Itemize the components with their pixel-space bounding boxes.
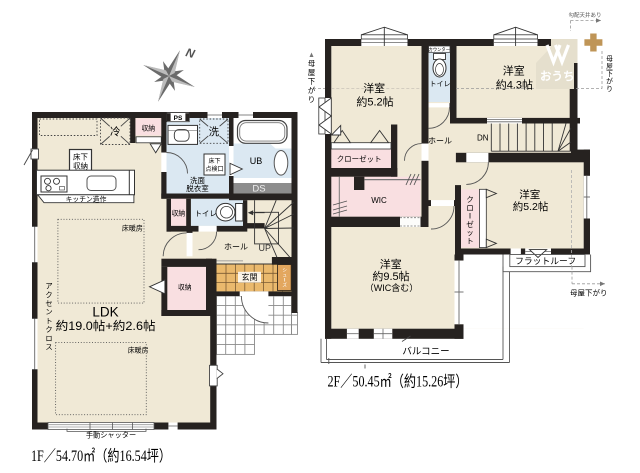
svg-text:トイレ: トイレ bbox=[430, 81, 451, 88]
svg-text:DN: DN bbox=[477, 134, 489, 143]
svg-text:アクセントクロス: アクセントクロス bbox=[45, 282, 54, 352]
svg-text:（WIC含む）: （WIC含む） bbox=[365, 282, 419, 293]
svg-text:約5.2帖: 約5.2帖 bbox=[356, 95, 393, 109]
svg-text:脱衣室: 脱衣室 bbox=[186, 183, 209, 193]
svg-text:UP: UP bbox=[259, 243, 272, 253]
svg-text:母屋下がり: 母屋下がり bbox=[570, 288, 608, 298]
svg-text:収納: 収納 bbox=[172, 208, 186, 217]
svg-text:収納: 収納 bbox=[142, 123, 156, 132]
svg-text:約5.2帖: 約5.2帖 bbox=[513, 200, 549, 213]
svg-text:LDK: LDK bbox=[92, 304, 118, 319]
svg-text:玄関: 玄関 bbox=[242, 272, 258, 282]
svg-text:ホール: ホール bbox=[224, 242, 248, 251]
svg-text:収納: 収納 bbox=[178, 283, 192, 292]
svg-text:キッチン造作: キッチン造作 bbox=[66, 195, 107, 204]
svg-text:床下: 床下 bbox=[208, 157, 220, 165]
svg-text:洋室: 洋室 bbox=[503, 64, 525, 78]
svg-text:ホール: ホール bbox=[428, 136, 452, 145]
svg-text:約4.3帖: 約4.3帖 bbox=[496, 78, 533, 92]
svg-text:屋: 屋 bbox=[308, 68, 316, 77]
svg-text:が: が bbox=[606, 77, 613, 86]
svg-text:フラットルーフ: フラットルーフ bbox=[515, 256, 576, 266]
svg-text:屋: 屋 bbox=[606, 63, 613, 71]
svg-text:り: り bbox=[606, 85, 613, 93]
svg-text:バルコニー: バルコニー bbox=[402, 347, 449, 358]
svg-text:クローゼット: クローゼット bbox=[337, 153, 382, 163]
svg-text:ロ: ロ bbox=[466, 204, 474, 213]
svg-text:母: 母 bbox=[606, 55, 613, 63]
svg-text:約9.5帖: 約9.5帖 bbox=[372, 269, 409, 283]
svg-text:床暖房: 床暖房 bbox=[128, 345, 149, 354]
svg-text:母: 母 bbox=[308, 59, 316, 68]
svg-text:UB: UB bbox=[250, 156, 263, 166]
svg-text:床暖房: 床暖房 bbox=[122, 223, 143, 232]
svg-text:冷: 冷 bbox=[110, 125, 121, 138]
svg-text:下: 下 bbox=[308, 77, 316, 86]
svg-text:WIC: WIC bbox=[371, 196, 387, 205]
svg-text:ュ: ュ bbox=[282, 273, 287, 278]
svg-text:トイレ: トイレ bbox=[194, 209, 217, 218]
svg-text:おうち: おうち bbox=[540, 70, 575, 83]
svg-text:が: が bbox=[308, 85, 316, 95]
svg-text:洋室: 洋室 bbox=[363, 81, 385, 95]
svg-text:PS: PS bbox=[174, 115, 183, 122]
svg-text:カウンター: カウンター bbox=[429, 46, 450, 53]
svg-text:点検口: 点検口 bbox=[205, 165, 223, 173]
svg-text:下: 下 bbox=[606, 70, 613, 78]
svg-text:ト: ト bbox=[466, 237, 474, 246]
svg-text:2F／50.45㎡（約15.26坪）: 2F／50.45㎡（約15.26坪） bbox=[328, 373, 468, 391]
svg-text:ズ: ズ bbox=[282, 282, 287, 289]
svg-text:り: り bbox=[308, 95, 316, 104]
svg-text:収納: 収納 bbox=[73, 160, 88, 170]
svg-text:洋室: 洋室 bbox=[380, 257, 402, 271]
svg-text:勾配天井あり: 勾配天井あり bbox=[568, 11, 601, 19]
svg-text:洋室: 洋室 bbox=[519, 188, 540, 201]
svg-text:手動シャッター: 手動シャッター bbox=[86, 431, 136, 440]
svg-text:DS: DS bbox=[252, 184, 265, 195]
svg-text:1F／54.70㎡（約16.54坪）: 1F／54.70㎡（約16.54坪） bbox=[31, 447, 171, 465]
svg-text:約19.0帖+約2.6帖: 約19.0帖+約2.6帖 bbox=[56, 318, 156, 333]
svg-text:洗: 洗 bbox=[209, 126, 220, 138]
svg-text:床下: 床下 bbox=[73, 151, 88, 161]
